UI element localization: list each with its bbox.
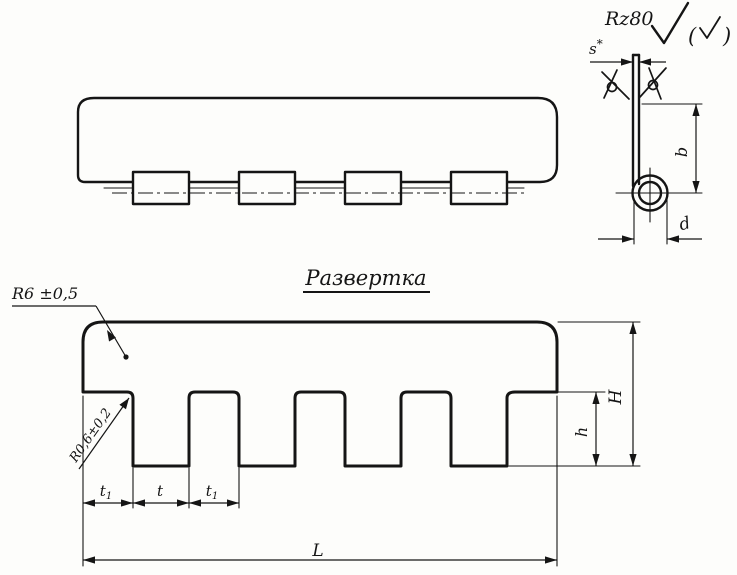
drawing-sheet: Rz80 ( ) s* b (0, 0, 737, 575)
knuckle-1 (133, 172, 189, 204)
roughness-paren-open: ( (688, 24, 697, 48)
dim-length-label: L (311, 541, 323, 561)
dim-H-label: H (606, 388, 626, 405)
knuckle-4 (451, 172, 507, 204)
hinge-drawing: Rz80 ( ) s* b (0, 0, 737, 575)
knuckle-2 (239, 172, 295, 204)
dim-corner-radius-label: R6 ±0,5 (11, 284, 78, 303)
roughness-value: Rz80 (604, 8, 654, 30)
dim-t-label: t (157, 482, 164, 500)
leader-end-dot (123, 354, 128, 359)
roughness-paren-close: ) (722, 24, 731, 48)
dim-h-label: h (572, 427, 591, 437)
knuckle-3 (345, 172, 401, 204)
flat-pattern-title: Развертка (304, 266, 426, 290)
dim-b-label: b (672, 147, 691, 157)
